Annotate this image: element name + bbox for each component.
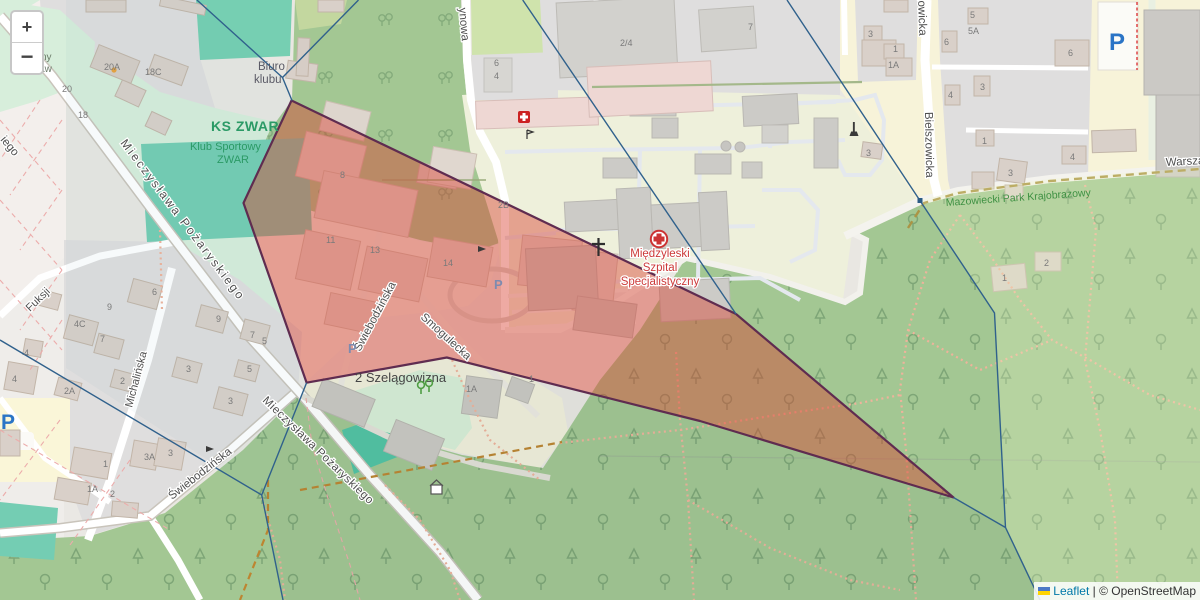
svg-text:2: 2 xyxy=(110,489,115,499)
svg-text:KS ZWAR: KS ZWAR xyxy=(211,118,279,134)
svg-text:3: 3 xyxy=(866,148,871,158)
svg-text:Warsza: Warsza xyxy=(1166,155,1200,169)
svg-text:4: 4 xyxy=(12,374,17,384)
svg-text:1: 1 xyxy=(103,459,108,469)
svg-text:P: P xyxy=(348,341,357,356)
svg-text:P: P xyxy=(1109,29,1125,56)
svg-text:20A: 20A xyxy=(104,62,120,72)
svg-text:2: 2 xyxy=(1044,258,1049,268)
svg-text:ZWAR: ZWAR xyxy=(217,154,249,166)
svg-text:Klub Sportowy: Klub Sportowy xyxy=(190,141,261,153)
svg-text:2B: 2B xyxy=(498,200,509,210)
svg-text:6: 6 xyxy=(152,287,157,297)
svg-text:18: 18 xyxy=(78,110,88,120)
svg-text:8: 8 xyxy=(340,170,345,180)
svg-text:5: 5 xyxy=(247,364,252,374)
svg-text:Bielszowicka: Bielszowicka xyxy=(914,0,928,36)
svg-text:5: 5 xyxy=(970,10,975,20)
svg-text:3A: 3A xyxy=(144,452,155,462)
svg-text:7: 7 xyxy=(100,334,105,344)
svg-text:klubu: klubu xyxy=(254,74,282,86)
svg-text:Biuro: Biuro xyxy=(258,61,285,73)
svg-text:3: 3 xyxy=(186,364,191,374)
svg-text:4: 4 xyxy=(494,71,499,81)
svg-text:7: 7 xyxy=(748,22,753,32)
svg-text:3: 3 xyxy=(868,29,873,39)
svg-text:6: 6 xyxy=(494,58,499,68)
svg-text:6: 6 xyxy=(1068,48,1073,58)
svg-text:1: 1 xyxy=(1002,273,1007,283)
svg-text:5A: 5A xyxy=(968,26,979,36)
svg-text:3: 3 xyxy=(168,448,173,458)
svg-text:11: 11 xyxy=(326,235,335,245)
svg-text:5: 5 xyxy=(262,336,267,346)
svg-text:1A: 1A xyxy=(888,60,899,70)
svg-text:Międzyleski: Międzyleski xyxy=(630,248,689,260)
svg-text:Bielszowicka: Bielszowicka xyxy=(922,112,935,179)
svg-text:9: 9 xyxy=(216,314,221,324)
svg-text:4: 4 xyxy=(948,90,953,100)
svg-text:Specjalistyczny: Specjalistyczny xyxy=(621,276,700,288)
svg-text:14: 14 xyxy=(443,258,453,268)
svg-text:20: 20 xyxy=(62,84,72,94)
svg-text:1A: 1A xyxy=(466,384,477,394)
svg-text:2/4: 2/4 xyxy=(620,38,633,48)
svg-text:4: 4 xyxy=(24,348,29,358)
svg-text:1: 1 xyxy=(893,44,898,54)
svg-text:1: 1 xyxy=(529,374,534,384)
svg-text:1A: 1A xyxy=(87,484,98,494)
svg-text:6: 6 xyxy=(944,37,949,47)
svg-text:3: 3 xyxy=(1008,168,1013,178)
svg-text:1: 1 xyxy=(982,136,987,146)
svg-text:7: 7 xyxy=(250,330,255,340)
svg-text:13: 13 xyxy=(370,245,380,255)
svg-text:3: 3 xyxy=(228,396,233,406)
svg-text:9: 9 xyxy=(107,302,112,312)
svg-text:18C: 18C xyxy=(145,67,162,77)
svg-text:Szpital: Szpital xyxy=(643,262,678,274)
svg-text:2: 2 xyxy=(120,376,125,386)
svg-text:3: 3 xyxy=(980,82,985,92)
svg-text:4: 4 xyxy=(1070,152,1075,162)
svg-text:P: P xyxy=(1,411,15,434)
svg-text:P: P xyxy=(494,277,503,292)
svg-text:4C: 4C xyxy=(74,319,86,329)
svg-text:2A: 2A xyxy=(64,386,75,396)
